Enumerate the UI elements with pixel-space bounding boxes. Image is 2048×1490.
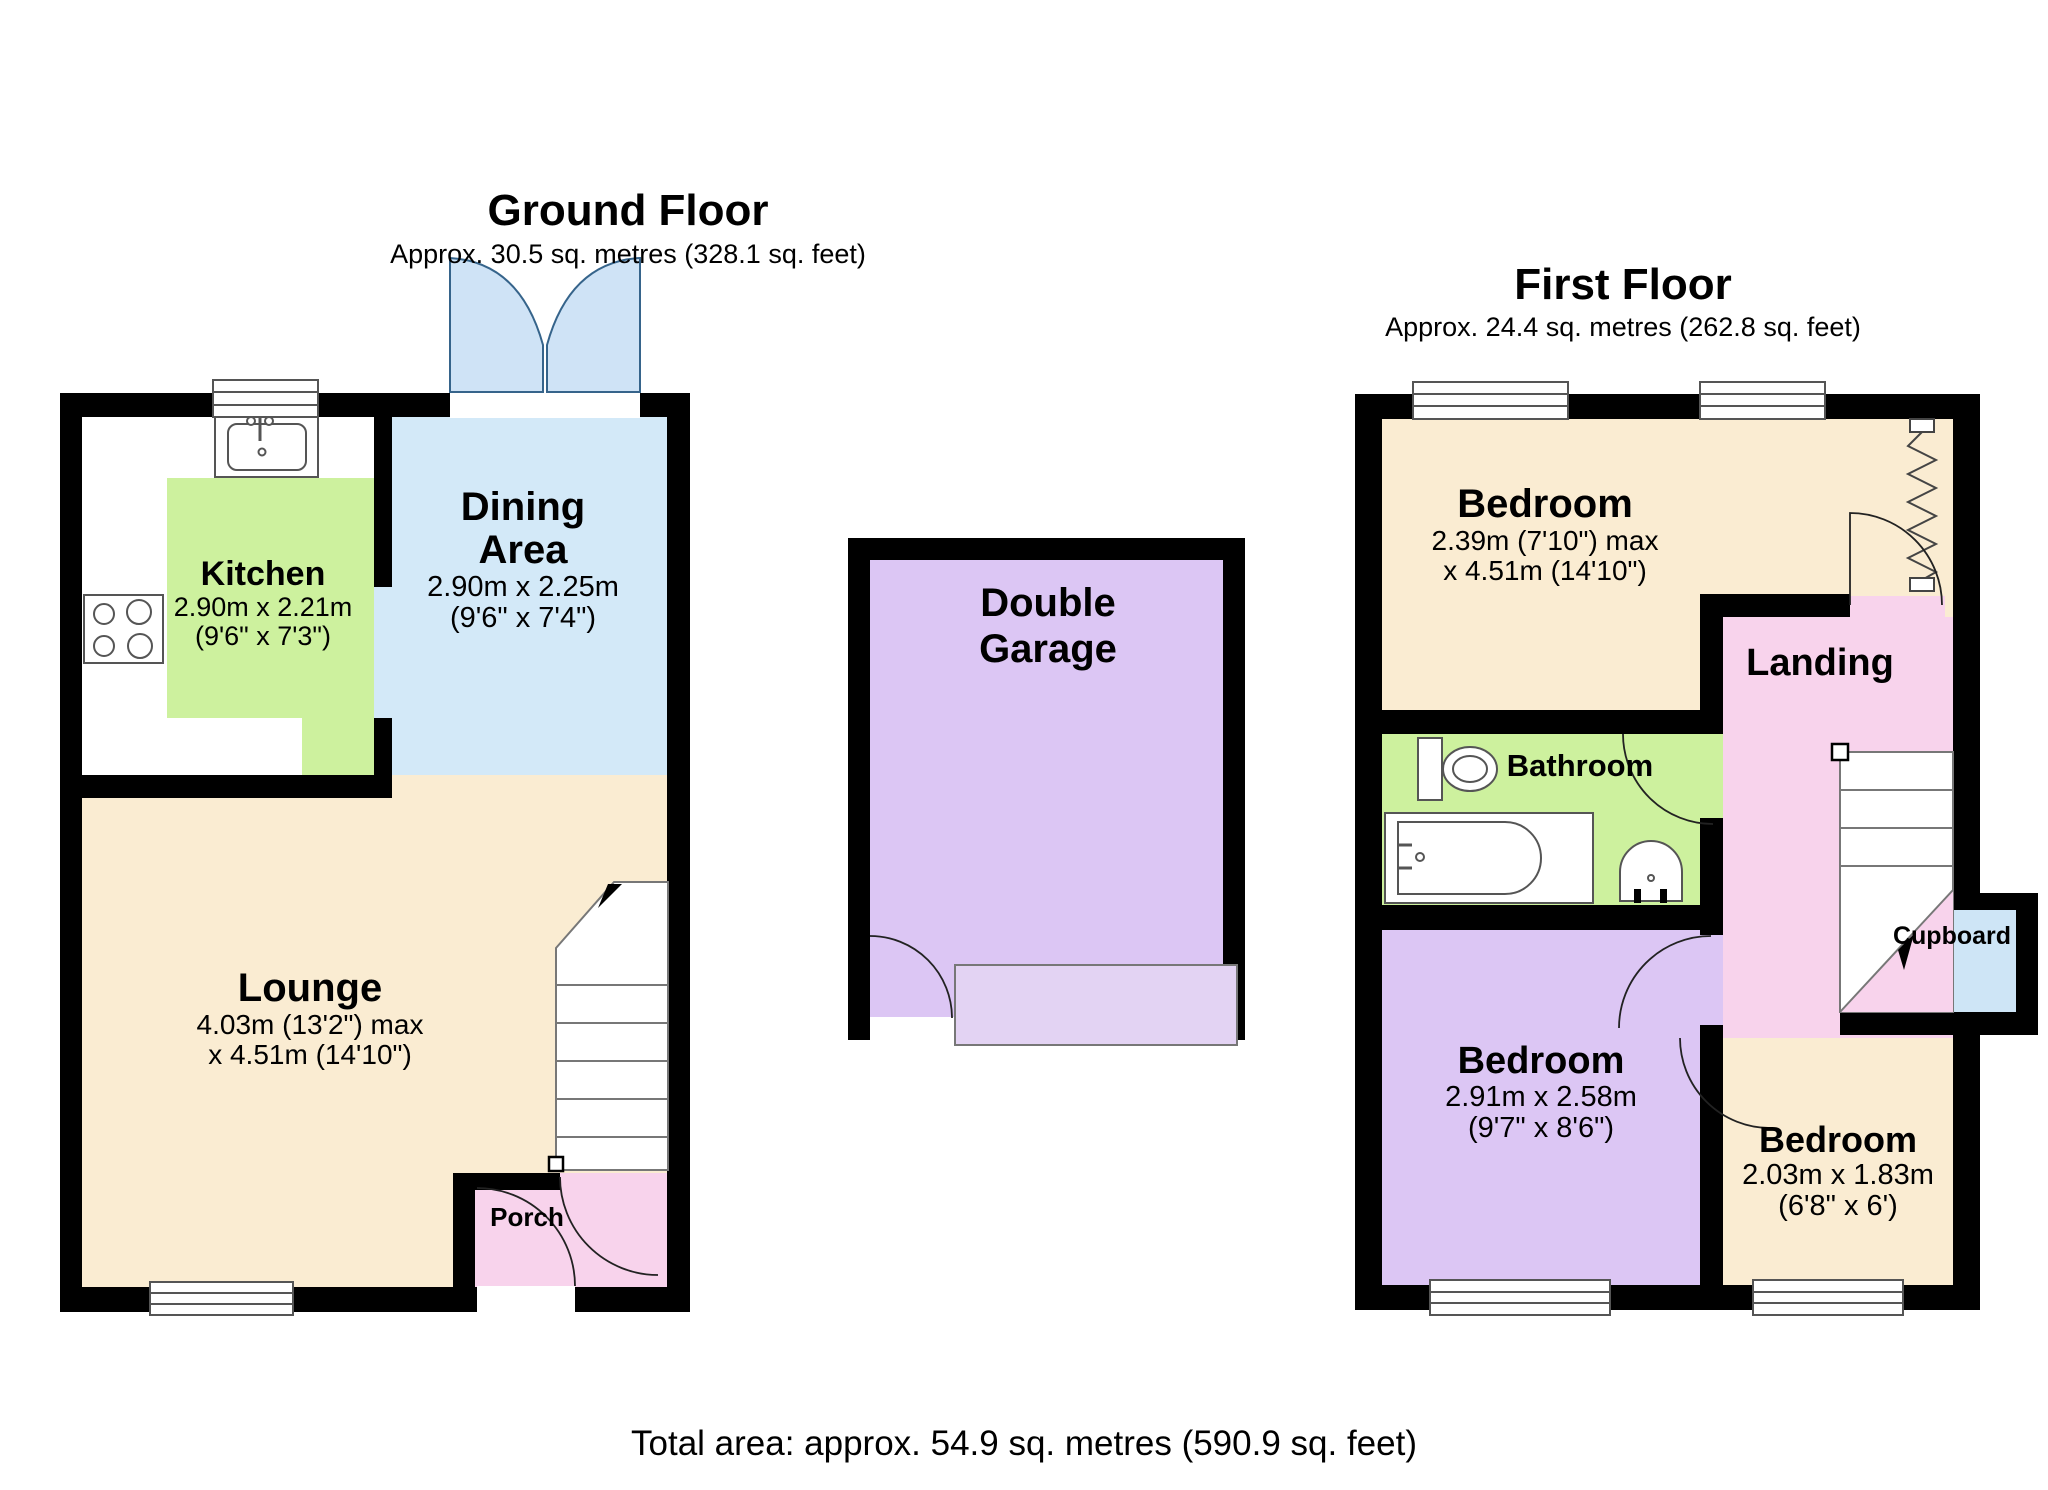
landing-label: Landing [1705,642,1935,685]
stairs-ground-floor [549,882,668,1171]
kitchen-label: Kitchen 2.90m x 2.21m (9'6" x 7'3") [143,556,383,651]
bathroom-label: Bathroom [1490,748,1670,784]
floorplan-drawing [0,0,2048,1490]
basin-icon [1620,841,1682,903]
bathtub-icon [1385,813,1593,903]
lounge-label: Lounge 4.03m (13'2") max x 4.51m (14'10"… [145,966,475,1070]
bedroom-top-label: Bedroom 2.39m (7'10") max x 4.51m (14'10… [1390,482,1700,586]
garage-door [955,965,1237,1045]
floorplan-canvas: Ground Floor Approx. 30.5 sq. metres (32… [0,0,2048,1490]
dining-area-label: Dining Area 2.90m x 2.25m (9'6" x 7'4") [398,486,648,634]
porch-label: Porch [462,1202,592,1233]
first-floor-title: First Floor [1323,260,1923,310]
door-arc [477,513,1942,1286]
bedroom-right-label: Bedroom 2.03m x 1.83m (6'8" x 6') [1725,1120,1951,1222]
ground-floor-subtitle: Approx. 30.5 sq. metres (328.1 sq. feet) [328,239,928,270]
stairs-first-floor [1832,744,1953,1012]
ground-floor-title: Ground Floor [328,186,928,236]
french-doors-icon [450,258,640,392]
cupboard-label: Cupboard [1882,922,2022,951]
zigzag-wall-icon [1908,419,1936,591]
bedroom-left-label: Bedroom 2.91m x 2.58m (9'7" x 8'6") [1400,1040,1682,1144]
first-floor-subtitle: Approx. 24.4 sq. metres (262.8 sq. feet) [1323,312,1923,343]
double-garage-label: Double Garage [908,580,1188,672]
total-area-label: Total area: approx. 54.9 sq. metres (590… [424,1424,1624,1464]
sink-icon [215,417,318,477]
toilet-icon [1418,738,1497,800]
